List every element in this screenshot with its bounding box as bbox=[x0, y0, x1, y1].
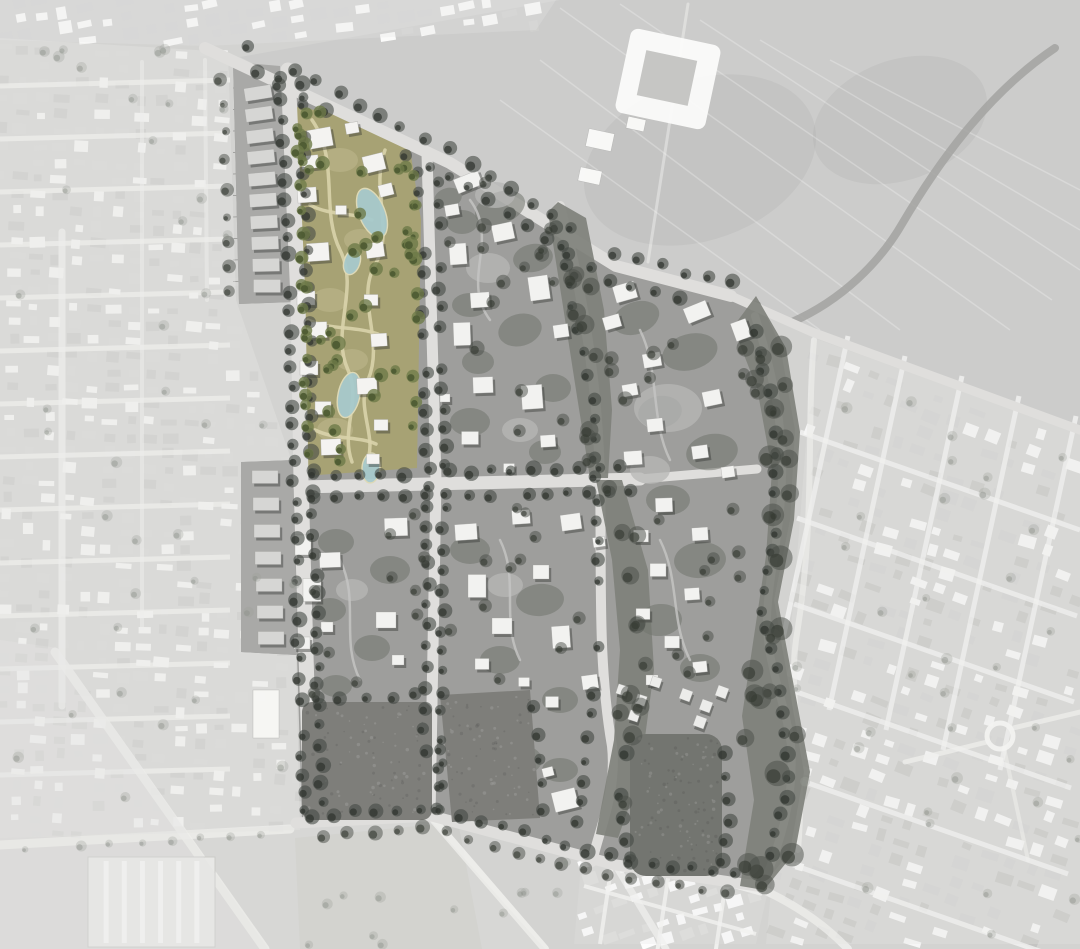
tree bbox=[434, 381, 448, 395]
tree bbox=[437, 565, 449, 577]
tree bbox=[314, 719, 324, 729]
building bbox=[553, 324, 570, 339]
tree bbox=[257, 831, 265, 839]
tree bbox=[419, 520, 432, 533]
tree bbox=[557, 240, 569, 252]
tree bbox=[707, 552, 720, 565]
building bbox=[540, 434, 556, 447]
tree bbox=[284, 344, 296, 356]
tree bbox=[477, 242, 489, 254]
tree bbox=[454, 809, 469, 824]
tree bbox=[579, 347, 589, 357]
tree bbox=[273, 92, 287, 106]
tree bbox=[384, 528, 396, 540]
tree bbox=[276, 760, 288, 772]
tree bbox=[223, 285, 235, 297]
tree bbox=[628, 526, 646, 544]
tree bbox=[434, 584, 448, 598]
tree bbox=[418, 443, 433, 458]
tree bbox=[732, 545, 746, 559]
building bbox=[691, 444, 709, 459]
tree bbox=[219, 104, 229, 114]
tree bbox=[1006, 573, 1016, 583]
tree bbox=[987, 930, 996, 939]
tree bbox=[776, 706, 790, 720]
tree bbox=[505, 562, 516, 573]
tree bbox=[154, 46, 166, 58]
vacant-parcel-basin bbox=[630, 734, 722, 876]
tree bbox=[618, 391, 633, 406]
tree bbox=[331, 336, 346, 351]
tree bbox=[594, 576, 603, 585]
tree bbox=[437, 735, 447, 745]
tree bbox=[496, 275, 511, 290]
tree bbox=[285, 400, 299, 414]
tree bbox=[644, 372, 656, 384]
tree bbox=[737, 853, 760, 876]
tree bbox=[68, 710, 76, 718]
building bbox=[665, 636, 680, 648]
tree bbox=[749, 324, 764, 339]
tree bbox=[310, 569, 324, 583]
tree bbox=[538, 245, 548, 255]
tree bbox=[308, 548, 321, 561]
tree bbox=[419, 132, 432, 145]
tree bbox=[408, 421, 418, 431]
tree bbox=[408, 170, 419, 181]
tree bbox=[563, 858, 571, 866]
tree bbox=[465, 156, 482, 173]
tree bbox=[242, 40, 255, 53]
tree bbox=[800, 777, 810, 787]
tree bbox=[116, 687, 127, 698]
building bbox=[546, 697, 559, 708]
tree bbox=[196, 193, 207, 204]
tree bbox=[877, 607, 887, 617]
wash-right bbox=[766, 338, 1080, 944]
tree bbox=[306, 508, 317, 519]
tree bbox=[317, 830, 330, 843]
tree bbox=[413, 187, 424, 198]
tree bbox=[298, 730, 310, 742]
tree bbox=[294, 75, 310, 91]
tree bbox=[346, 309, 358, 321]
tree bbox=[503, 207, 516, 220]
building bbox=[462, 432, 479, 445]
tree bbox=[445, 172, 454, 181]
tree bbox=[283, 286, 298, 301]
tree bbox=[581, 369, 594, 382]
tree bbox=[788, 726, 806, 744]
tree bbox=[223, 213, 231, 221]
tree bbox=[717, 745, 733, 761]
tree bbox=[76, 840, 87, 851]
tree bbox=[525, 460, 541, 476]
tree bbox=[1069, 894, 1080, 905]
tree bbox=[947, 431, 957, 441]
tree bbox=[672, 290, 687, 305]
tree bbox=[22, 846, 29, 853]
building bbox=[655, 498, 672, 513]
tree bbox=[295, 251, 309, 265]
tree bbox=[281, 213, 296, 228]
tree bbox=[442, 826, 453, 837]
tree bbox=[780, 843, 804, 867]
tree bbox=[291, 513, 303, 525]
tree bbox=[657, 258, 669, 270]
tree bbox=[299, 389, 312, 402]
tree bbox=[939, 493, 951, 505]
tree bbox=[334, 455, 345, 466]
tree bbox=[296, 652, 306, 662]
building bbox=[250, 215, 278, 229]
tree bbox=[359, 299, 373, 313]
tree bbox=[406, 370, 419, 383]
tree bbox=[419, 744, 433, 758]
tree bbox=[327, 808, 342, 823]
tree bbox=[285, 417, 298, 430]
tree bbox=[298, 377, 309, 388]
tree bbox=[727, 503, 740, 516]
tree bbox=[506, 466, 516, 476]
tree bbox=[476, 218, 492, 234]
building bbox=[376, 612, 396, 628]
tree bbox=[581, 757, 590, 766]
tree bbox=[297, 303, 308, 314]
tree bbox=[13, 752, 24, 763]
tree bbox=[424, 462, 437, 475]
tree bbox=[478, 599, 492, 613]
tree bbox=[410, 585, 421, 596]
building bbox=[473, 377, 494, 394]
tree bbox=[354, 490, 364, 500]
tree bbox=[436, 363, 448, 375]
tree bbox=[165, 99, 173, 107]
tree bbox=[593, 641, 604, 652]
building bbox=[345, 121, 360, 134]
tree bbox=[723, 814, 738, 829]
tree bbox=[354, 469, 365, 480]
tree bbox=[450, 905, 458, 913]
tree bbox=[771, 528, 782, 539]
tree bbox=[906, 396, 917, 407]
building bbox=[560, 513, 582, 532]
tree bbox=[275, 134, 290, 149]
building bbox=[721, 466, 735, 479]
tree bbox=[484, 490, 497, 503]
tree bbox=[295, 769, 309, 783]
tree bbox=[44, 428, 52, 436]
tree bbox=[922, 594, 930, 602]
tree bbox=[43, 404, 52, 413]
tree bbox=[474, 815, 487, 828]
tree bbox=[223, 230, 233, 240]
tree bbox=[330, 490, 343, 503]
tree bbox=[439, 439, 454, 454]
tree bbox=[779, 746, 795, 762]
tree bbox=[196, 833, 204, 841]
tree bbox=[386, 571, 398, 583]
building bbox=[367, 454, 380, 464]
building bbox=[248, 171, 276, 186]
tree bbox=[444, 236, 456, 248]
tree bbox=[780, 450, 798, 468]
tree bbox=[613, 459, 627, 473]
tree bbox=[438, 666, 447, 675]
tree bbox=[616, 811, 631, 826]
tree bbox=[274, 71, 287, 84]
tree bbox=[619, 832, 634, 847]
tree bbox=[387, 692, 399, 704]
tree bbox=[667, 338, 679, 350]
tree bbox=[778, 727, 790, 739]
tree bbox=[744, 684, 764, 704]
tree bbox=[680, 269, 691, 280]
tree bbox=[420, 500, 433, 513]
tree bbox=[563, 487, 573, 497]
tree bbox=[841, 542, 850, 551]
tree bbox=[638, 657, 653, 672]
tree bbox=[201, 419, 211, 429]
tree bbox=[621, 567, 639, 585]
tree bbox=[304, 165, 314, 175]
tree bbox=[741, 660, 763, 682]
tree bbox=[777, 377, 793, 393]
tree bbox=[672, 648, 685, 661]
tree bbox=[423, 481, 434, 492]
tree bbox=[514, 554, 526, 566]
tree bbox=[624, 484, 637, 497]
tree bbox=[494, 673, 506, 685]
tree bbox=[434, 744, 446, 756]
tree bbox=[1033, 797, 1044, 808]
tree bbox=[289, 578, 301, 590]
tree bbox=[437, 301, 448, 312]
tree bbox=[579, 844, 595, 860]
tree bbox=[418, 551, 431, 564]
tree bbox=[437, 645, 447, 655]
tree bbox=[371, 231, 383, 243]
tree bbox=[291, 145, 305, 159]
tree bbox=[765, 761, 791, 787]
tree bbox=[418, 702, 432, 716]
tree bbox=[463, 182, 473, 192]
tree bbox=[305, 809, 320, 824]
tree bbox=[544, 222, 557, 235]
existing-building-west bbox=[253, 690, 279, 738]
tree bbox=[304, 449, 314, 459]
plaza bbox=[487, 573, 523, 597]
tree bbox=[425, 162, 435, 172]
building bbox=[336, 206, 347, 215]
tree bbox=[862, 882, 874, 894]
tree bbox=[576, 775, 590, 789]
tree bbox=[318, 797, 328, 807]
building bbox=[454, 523, 477, 540]
tree bbox=[111, 456, 123, 468]
building bbox=[468, 575, 486, 598]
tree bbox=[481, 192, 496, 207]
tree bbox=[417, 265, 431, 279]
tree bbox=[586, 262, 597, 273]
tree bbox=[779, 790, 795, 806]
tree bbox=[722, 792, 736, 806]
tree bbox=[769, 828, 779, 838]
tree bbox=[513, 424, 526, 437]
tree bbox=[328, 424, 341, 437]
tree bbox=[295, 692, 310, 707]
tree bbox=[400, 149, 412, 161]
tree bbox=[535, 854, 545, 864]
tree bbox=[575, 315, 594, 334]
tree bbox=[856, 512, 865, 521]
tree bbox=[292, 497, 302, 507]
tree bbox=[503, 181, 519, 197]
tree bbox=[841, 402, 853, 414]
tree bbox=[515, 384, 528, 397]
tree bbox=[351, 676, 363, 688]
tree bbox=[756, 606, 767, 617]
tree bbox=[586, 708, 597, 719]
tree bbox=[531, 728, 545, 742]
tree bbox=[219, 154, 230, 165]
tree bbox=[736, 729, 754, 747]
tree bbox=[372, 108, 387, 123]
tree bbox=[361, 693, 371, 703]
tree bbox=[487, 464, 497, 474]
building bbox=[371, 333, 388, 347]
tree bbox=[290, 531, 304, 545]
tree bbox=[648, 858, 659, 869]
tree bbox=[604, 351, 618, 365]
tree bbox=[557, 414, 570, 427]
tree bbox=[762, 565, 773, 576]
tree bbox=[30, 624, 40, 634]
tree bbox=[332, 691, 347, 706]
tree bbox=[421, 599, 430, 608]
tree bbox=[601, 480, 617, 496]
tree bbox=[282, 232, 292, 242]
masterplan-rendering: Aerial masterplan rendering: grayscale s… bbox=[0, 0, 1080, 949]
tree bbox=[422, 367, 434, 379]
tree bbox=[983, 889, 993, 899]
tree bbox=[308, 468, 320, 480]
tree bbox=[537, 778, 547, 788]
tree bbox=[15, 290, 25, 300]
tree bbox=[201, 288, 211, 298]
tree bbox=[375, 468, 387, 480]
tree bbox=[434, 320, 447, 333]
tree bbox=[259, 420, 268, 429]
tree bbox=[39, 46, 50, 57]
building bbox=[624, 450, 643, 465]
tree bbox=[356, 166, 368, 178]
tree bbox=[438, 780, 448, 790]
building bbox=[319, 552, 341, 568]
building bbox=[257, 606, 283, 619]
tree bbox=[924, 807, 933, 816]
tree bbox=[130, 588, 141, 599]
tree bbox=[283, 360, 296, 373]
tree bbox=[698, 886, 707, 895]
tree bbox=[330, 470, 342, 482]
tree bbox=[527, 198, 539, 210]
vacant-parcel-central bbox=[440, 690, 540, 822]
tree bbox=[368, 826, 383, 841]
tree bbox=[292, 612, 308, 628]
tree bbox=[591, 516, 602, 527]
tree bbox=[322, 405, 335, 418]
tree bbox=[279, 155, 293, 169]
tree bbox=[391, 806, 402, 817]
tree bbox=[312, 739, 326, 753]
tree bbox=[464, 466, 479, 481]
tree bbox=[908, 671, 916, 679]
tree bbox=[764, 398, 784, 418]
tree bbox=[398, 489, 412, 503]
tree bbox=[277, 173, 293, 189]
tree bbox=[284, 324, 300, 340]
tree bbox=[421, 661, 433, 673]
tree bbox=[582, 278, 600, 296]
tree bbox=[983, 472, 993, 482]
tree bbox=[683, 666, 696, 679]
tree bbox=[294, 179, 307, 192]
tree bbox=[393, 164, 404, 175]
tree bbox=[761, 504, 784, 527]
tree bbox=[128, 94, 138, 104]
tree bbox=[433, 199, 443, 209]
tree bbox=[313, 775, 329, 791]
tree bbox=[621, 685, 640, 704]
tree bbox=[420, 423, 434, 437]
tree bbox=[411, 608, 423, 620]
tree bbox=[191, 695, 200, 704]
tree bbox=[512, 503, 522, 513]
tree bbox=[703, 270, 715, 282]
tree bbox=[549, 277, 559, 287]
tree bbox=[420, 539, 432, 551]
tree bbox=[409, 687, 422, 700]
building bbox=[251, 236, 278, 250]
tree bbox=[469, 341, 484, 356]
tree bbox=[865, 727, 875, 737]
tree bbox=[435, 521, 449, 535]
tree bbox=[523, 488, 536, 501]
tree bbox=[339, 891, 347, 899]
tree bbox=[252, 573, 261, 582]
tree bbox=[288, 592, 303, 607]
tree bbox=[979, 488, 991, 500]
tree bbox=[573, 612, 586, 625]
tree bbox=[288, 63, 302, 77]
building bbox=[475, 659, 489, 670]
tree bbox=[190, 577, 198, 585]
tree bbox=[630, 616, 645, 631]
plaza bbox=[634, 384, 702, 432]
tree bbox=[601, 869, 613, 881]
tree bbox=[394, 121, 405, 132]
tree bbox=[1046, 627, 1055, 636]
tree bbox=[437, 544, 450, 557]
tree bbox=[588, 393, 601, 406]
building bbox=[254, 525, 280, 538]
tree bbox=[396, 467, 412, 483]
tree bbox=[316, 335, 326, 345]
tree bbox=[315, 662, 324, 671]
building bbox=[684, 587, 700, 600]
tree bbox=[340, 826, 353, 839]
